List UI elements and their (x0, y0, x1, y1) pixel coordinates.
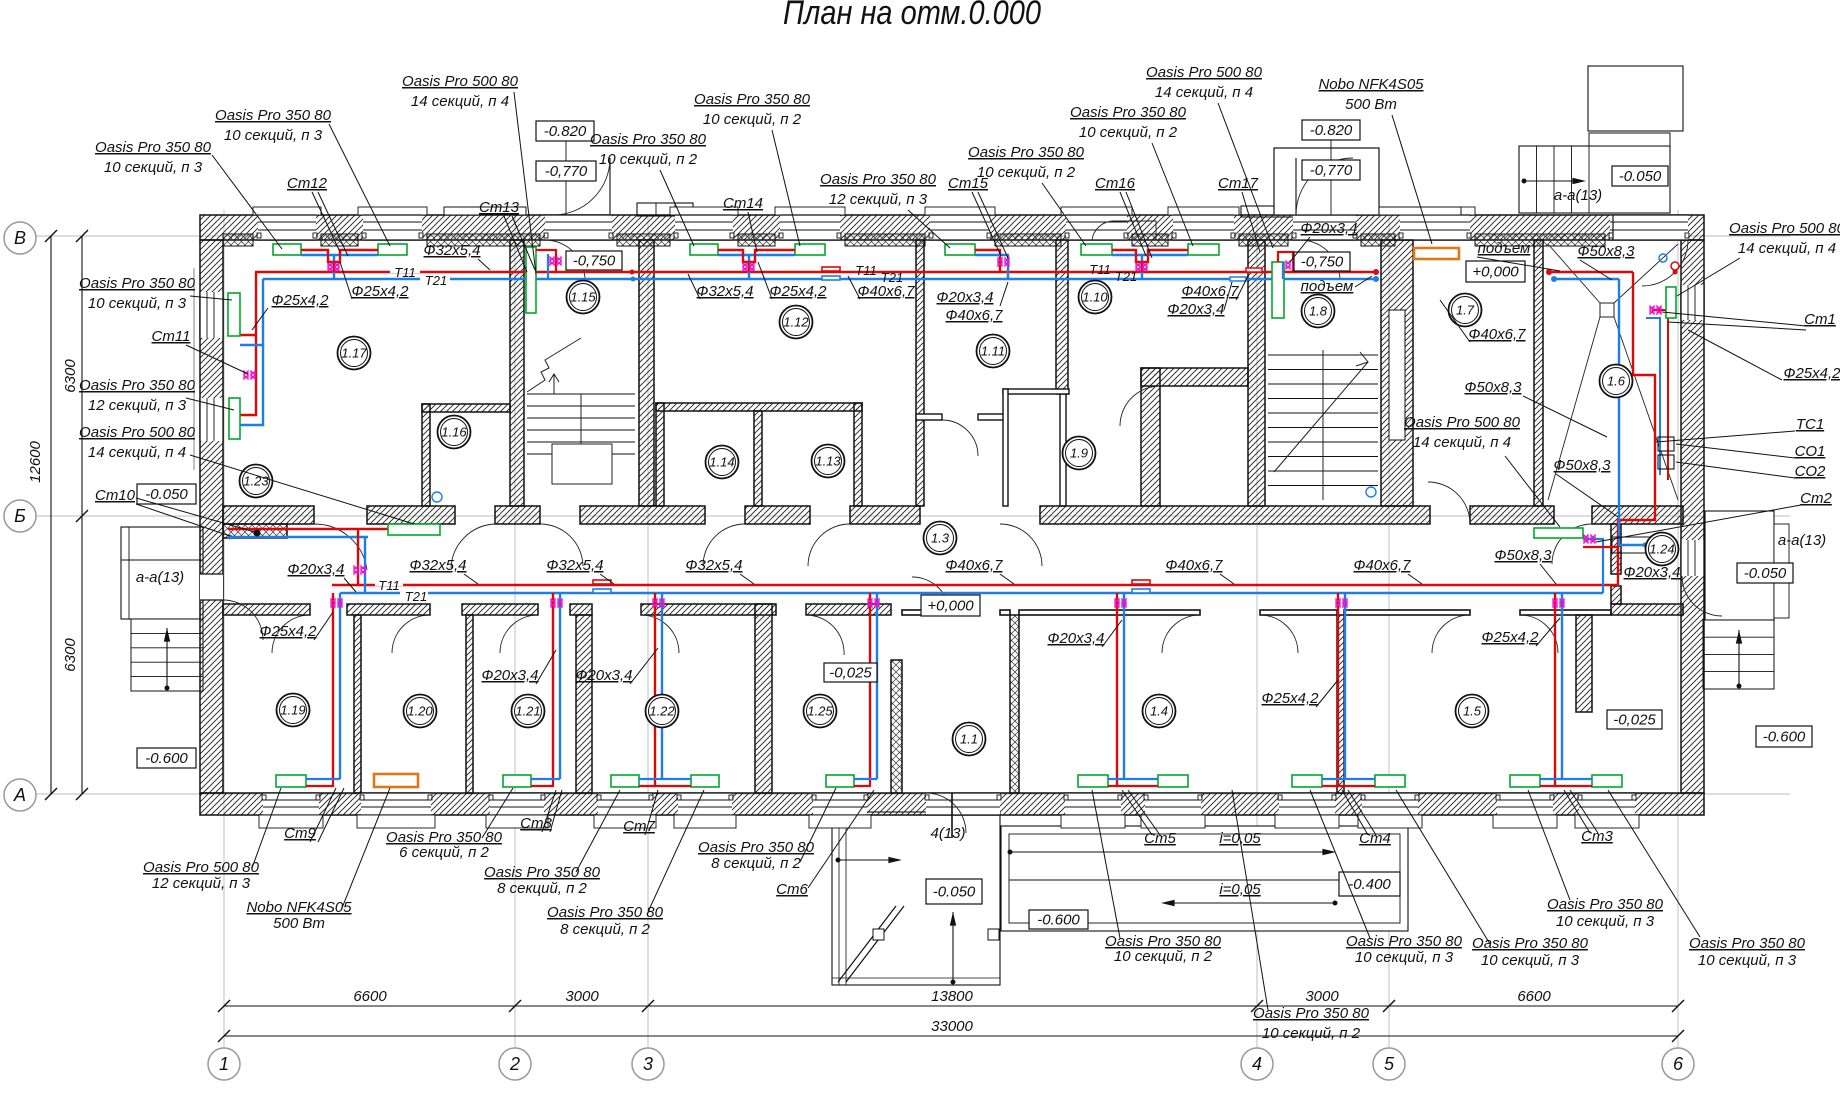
svg-text:Oasis Pro 500 80: Oasis Pro 500 80 (143, 859, 260, 876)
svg-text:5: 5 (1384, 1054, 1395, 1074)
svg-text:-0,750: -0,750 (573, 253, 616, 270)
svg-text:500 Вт: 500 Вт (273, 915, 325, 932)
svg-text:1.15: 1.15 (570, 290, 596, 305)
svg-text:А: А (13, 785, 26, 805)
svg-text:+0,000: +0,000 (927, 598, 974, 615)
svg-text:Ф32х5,4: Ф32х5,4 (686, 557, 743, 574)
svg-text:4: 4 (1252, 1054, 1262, 1074)
svg-text:-0,750: -0,750 (1301, 254, 1344, 271)
svg-text:Oasis Pro 350 80: Oasis Pro 350 80 (1070, 104, 1187, 121)
svg-text:4(13): 4(13) (930, 825, 965, 842)
svg-text:Ф20х3,4: Ф20х3,4 (937, 289, 994, 306)
svg-text:Oasis Pro 350 80: Oasis Pro 350 80 (484, 864, 601, 881)
svg-text:1.11: 1.11 (981, 344, 1005, 359)
svg-text:1.16: 1.16 (441, 425, 467, 440)
svg-text:Oasis Pro 350 80: Oasis Pro 350 80 (698, 839, 815, 856)
svg-text:+0,000: +0,000 (1472, 264, 1519, 281)
svg-text:3000: 3000 (1305, 988, 1339, 1005)
svg-text:-0.820: -0.820 (544, 123, 587, 140)
svg-text:14 секций, п 4: 14 секций, п 4 (1413, 434, 1511, 451)
svg-text:1.5: 1.5 (1463, 704, 1482, 719)
svg-text:10 секций, п 2: 10 секций, п 2 (599, 151, 698, 168)
svg-text:33000: 33000 (931, 1018, 973, 1035)
svg-text:1.19: 1.19 (280, 703, 305, 718)
svg-text:6300: 6300 (62, 638, 79, 672)
svg-text:Ф40х6,7: Ф40х6,7 (946, 557, 1004, 574)
svg-text:1.24: 1.24 (1649, 542, 1674, 557)
svg-text:1.6: 1.6 (1607, 374, 1626, 389)
svg-text:Ф25х4,2: Ф25х4,2 (1262, 690, 1320, 707)
svg-text:T11: T11 (1089, 262, 1110, 277)
svg-text:Oasis Pro 350 80: Oasis Pro 350 80 (215, 107, 332, 124)
svg-text:Ф20х3,4: Ф20х3,4 (482, 667, 539, 684)
svg-text:Ф25х4,2: Ф25х4,2 (272, 292, 330, 309)
svg-text:1.9: 1.9 (1070, 446, 1088, 461)
svg-text:-0,770: -0,770 (1310, 162, 1353, 179)
svg-text:10 секций, п 2: 10 секций, п 2 (1262, 1025, 1361, 1042)
svg-text:10 секций, п 2: 10 секций, п 2 (1114, 948, 1213, 965)
svg-text:а-а(13): а-а(13) (136, 569, 184, 586)
svg-text:6: 6 (1673, 1054, 1684, 1074)
svg-text:1.22: 1.22 (649, 704, 675, 719)
svg-text:10 секций, п 3: 10 секций, п 3 (1355, 949, 1454, 966)
svg-text:1.25: 1.25 (807, 704, 833, 719)
svg-text:СО1: СО1 (1795, 443, 1826, 460)
svg-text:Oasis Pro 500 80: Oasis Pro 500 80 (1146, 64, 1263, 81)
svg-text:T21: T21 (405, 589, 427, 604)
svg-text:Oasis Pro 350 80: Oasis Pro 350 80 (95, 139, 212, 156)
svg-text:Ст10: Ст10 (95, 487, 136, 504)
svg-text:8 секций, п 2: 8 секций, п 2 (711, 855, 801, 872)
svg-text:-0.050: -0.050 (145, 486, 188, 503)
svg-text:Nobo NFK4S05: Nobo NFK4S05 (246, 899, 352, 916)
svg-text:Oasis Pro 500 80: Oasis Pro 500 80 (1404, 414, 1521, 431)
svg-text:Oasis Pro 350 80: Oasis Pro 350 80 (590, 131, 707, 148)
svg-text:Oasis Pro 350 80: Oasis Pro 350 80 (1253, 1005, 1370, 1022)
svg-text:T21: T21 (1115, 269, 1137, 284)
svg-text:Oasis Pro 350 80: Oasis Pro 350 80 (1689, 935, 1806, 952)
svg-text:-0.400: -0.400 (1348, 876, 1391, 893)
svg-text:6300: 6300 (62, 359, 79, 393)
svg-text:8 секций, п 2: 8 секций, п 2 (497, 880, 587, 897)
svg-text:1.10: 1.10 (1082, 290, 1108, 305)
svg-text:Ф25х4,2: Ф25х4,2 (1784, 365, 1840, 382)
svg-text:T11: T11 (855, 263, 876, 278)
svg-text:Ф25х4,2: Ф25х4,2 (770, 283, 828, 300)
svg-text:-0.600: -0.600 (1037, 912, 1080, 929)
svg-text:Ф32х5,4: Ф32х5,4 (410, 557, 467, 574)
svg-text:Ст2: Ст2 (1800, 490, 1832, 507)
svg-text:Ф25х4,2: Ф25х4,2 (1482, 629, 1540, 646)
svg-text:подъем: подъем (1301, 278, 1354, 295)
svg-text:2: 2 (509, 1054, 520, 1074)
svg-text:Ф40х6,7: Ф40х6,7 (1469, 326, 1527, 343)
svg-text:а-а(13): а-а(13) (1778, 532, 1826, 549)
svg-text:Ст13: Ст13 (479, 199, 520, 216)
svg-text:План на отм.0.000: План на отм.0.000 (783, 0, 1041, 32)
svg-text:i=0,05: i=0,05 (1219, 881, 1261, 898)
svg-text:Ф20х3,4: Ф20х3,4 (1624, 564, 1681, 581)
svg-text:-0,770: -0,770 (545, 163, 588, 180)
svg-text:Oasis Pro 500 80: Oasis Pro 500 80 (402, 73, 519, 90)
svg-text:10 секций, п 3: 10 секций, п 3 (88, 295, 187, 312)
svg-text:Ст11: Ст11 (152, 328, 191, 345)
svg-text:6600: 6600 (353, 988, 387, 1005)
svg-text:1: 1 (219, 1054, 229, 1074)
svg-text:Ст7: Ст7 (623, 818, 655, 835)
svg-text:14 секций, п 4: 14 секций, п 4 (1155, 84, 1253, 101)
svg-text:10 секций, п 2: 10 секций, п 2 (703, 111, 802, 128)
svg-text:10 секций, п 3: 10 секций, п 3 (1698, 952, 1797, 969)
svg-text:1.14: 1.14 (709, 455, 734, 470)
svg-text:Ст5: Ст5 (1144, 830, 1176, 847)
svg-text:-0.600: -0.600 (145, 750, 188, 767)
svg-text:12600: 12600 (27, 440, 44, 482)
svg-text:СО2: СО2 (1795, 463, 1826, 480)
svg-text:1.17: 1.17 (341, 346, 367, 361)
svg-text:Oasis Pro 350 80: Oasis Pro 350 80 (1547, 896, 1664, 913)
svg-text:8 секций, п 2: 8 секций, п 2 (560, 921, 650, 938)
svg-text:10 секций, п 2: 10 секций, п 2 (1079, 124, 1178, 141)
svg-text:Oasis Pro 500 80: Oasis Pro 500 80 (79, 424, 196, 441)
svg-text:а-а(13): а-а(13) (1554, 187, 1602, 204)
svg-text:Ф25х4,2: Ф25х4,2 (352, 283, 410, 300)
svg-text:1.3: 1.3 (931, 531, 950, 546)
svg-text:10 секций, п 3: 10 секций, п 3 (104, 159, 203, 176)
svg-text:T11: T11 (394, 265, 415, 280)
svg-text:14 секций, п 4: 14 секций, п 4 (411, 93, 509, 110)
svg-text:500 Вт: 500 Вт (1345, 96, 1397, 113)
svg-text:Ст14: Ст14 (723, 195, 763, 212)
svg-text:Ф50х8,3: Ф50х8,3 (1578, 243, 1636, 260)
svg-text:Ф32х5,4: Ф32х5,4 (547, 557, 604, 574)
svg-text:Ст17: Ст17 (1218, 175, 1259, 192)
svg-text:Ф20х3,4: Ф20х3,4 (1048, 630, 1105, 647)
svg-text:ТС1: ТС1 (1796, 416, 1824, 433)
svg-text:T11: T11 (378, 578, 399, 593)
svg-text:Ф50х8,3: Ф50х8,3 (1495, 547, 1553, 564)
svg-text:1.4: 1.4 (1150, 704, 1168, 719)
svg-text:Oasis Pro 350 80: Oasis Pro 350 80 (694, 91, 811, 108)
svg-text:Ф20х3,4: Ф20х3,4 (1168, 301, 1225, 318)
svg-text:-0.820: -0.820 (1310, 122, 1353, 139)
svg-text:Ст12: Ст12 (287, 175, 328, 192)
svg-text:1.20: 1.20 (407, 704, 433, 719)
svg-text:Ф50х8,3: Ф50х8,3 (1554, 457, 1612, 474)
svg-text:Ф40х6,7: Ф40х6,7 (946, 307, 1004, 324)
svg-text:-0,025: -0,025 (1613, 712, 1656, 729)
svg-text:13800: 13800 (931, 988, 973, 1005)
svg-text:14 секций, п 4: 14 секций, п 4 (1738, 240, 1836, 257)
svg-text:-0.050: -0.050 (933, 884, 976, 901)
svg-text:10 секций, п 3: 10 секций, п 3 (1481, 952, 1580, 969)
svg-text:Ст8: Ст8 (520, 815, 552, 832)
svg-text:10 секций, п 3: 10 секций, п 3 (224, 127, 323, 144)
svg-text:Ст3: Ст3 (1581, 828, 1613, 845)
svg-text:Oasis Pro 350 80: Oasis Pro 350 80 (79, 377, 196, 394)
svg-text:подъем: подъем (1478, 240, 1531, 257)
svg-text:1.21: 1.21 (515, 704, 540, 719)
svg-text:Oasis Pro 350 80: Oasis Pro 350 80 (968, 144, 1085, 161)
svg-text:12 секций, п 3: 12 секций, п 3 (152, 875, 251, 892)
svg-text:Ф20х3,4: Ф20х3,4 (288, 561, 345, 578)
svg-text:Ф32х5,4: Ф32х5,4 (697, 283, 754, 300)
svg-text:1.8: 1.8 (1309, 304, 1328, 319)
svg-text:Oasis Pro 350 80: Oasis Pro 350 80 (79, 275, 196, 292)
svg-text:Oasis Pro 350 80: Oasis Pro 350 80 (820, 171, 937, 188)
svg-text:3: 3 (643, 1054, 653, 1074)
svg-text:Ф20х3,4: Ф20х3,4 (1301, 220, 1358, 237)
svg-text:Oasis Pro 350 80: Oasis Pro 350 80 (547, 904, 664, 921)
svg-text:1.13: 1.13 (815, 454, 841, 469)
svg-text:-0.050: -0.050 (1744, 565, 1787, 582)
svg-text:Ст16: Ст16 (1095, 175, 1136, 192)
svg-text:3000: 3000 (565, 988, 599, 1005)
svg-text:Б: Б (14, 506, 26, 526)
svg-text:6600: 6600 (1517, 988, 1551, 1005)
svg-text:10 секций, п 2: 10 секций, п 2 (977, 164, 1076, 181)
svg-text:Ф40х6,7: Ф40х6,7 (1166, 557, 1224, 574)
svg-text:-0.050: -0.050 (1619, 168, 1662, 185)
svg-text:Ф32х5,4: Ф32х5,4 (424, 242, 481, 259)
svg-text:Ф50х8,3: Ф50х8,3 (1465, 379, 1523, 396)
svg-text:Ст1: Ст1 (1804, 311, 1836, 328)
svg-text:Ст6: Ст6 (776, 881, 808, 898)
svg-text:12 секций, п 3: 12 секций, п 3 (829, 191, 928, 208)
svg-text:Ф25х4,2: Ф25х4,2 (260, 623, 318, 640)
svg-text:Nobo NFK4S05: Nobo NFK4S05 (1318, 76, 1424, 93)
svg-text:-0,025: -0,025 (829, 665, 872, 682)
svg-text:1.7: 1.7 (1456, 303, 1475, 318)
svg-text:T21: T21 (425, 273, 447, 288)
svg-text:Ф40х6,7: Ф40х6,7 (1354, 557, 1412, 574)
svg-text:Ф40х6,7: Ф40х6,7 (858, 283, 916, 300)
svg-text:В: В (14, 228, 26, 248)
svg-text:1.12: 1.12 (783, 315, 809, 330)
svg-text:Oasis Pro 350 80: Oasis Pro 350 80 (1346, 933, 1463, 950)
svg-text:Ф20х3,4: Ф20х3,4 (576, 667, 633, 684)
svg-text:Oasis Pro 500 80: Oasis Pro 500 80 (1729, 220, 1840, 237)
svg-text:6 секций, п 2: 6 секций, п 2 (399, 844, 489, 861)
svg-text:10 секций, п 3: 10 секций, п 3 (1556, 913, 1655, 930)
svg-text:1.1: 1.1 (960, 732, 978, 747)
svg-text:12 секций, п 3: 12 секций, п 3 (88, 397, 187, 414)
svg-text:14 секций, п 4: 14 секций, п 4 (88, 444, 186, 461)
svg-text:-0.600: -0.600 (1763, 729, 1806, 746)
